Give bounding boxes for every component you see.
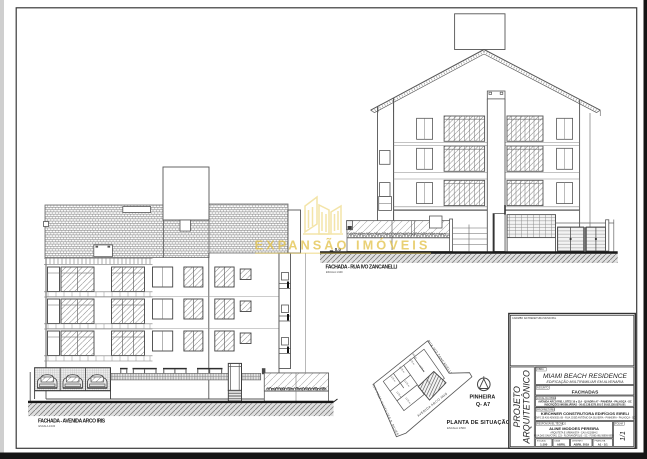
svg-text:EDIFICAÇÃO MULTIFAMILIAR EM AL: EDIFICAÇÃO MULTIFAMILIAR EM ALVENARIA <box>546 379 624 384</box>
svg-text:PINHEIRA: PINHEIRA <box>470 395 496 401</box>
svg-text:ESCALA 1/500: ESCALA 1/500 <box>447 426 466 430</box>
svg-text:ABRIL: ABRIL <box>557 442 566 446</box>
svg-text:PROJETO: PROJETO <box>512 386 522 428</box>
svg-text:ASSUNTO: ASSUNTO <box>537 387 549 390</box>
svg-text:FACHADAS: FACHADAS <box>572 390 599 396</box>
svg-text:1/1: 1/1 <box>620 431 627 441</box>
svg-text:OBRA: OBRA <box>537 368 544 371</box>
svg-text:KIRCHNER CONSTRUTORA EDIFÍCIOS: KIRCHNER CONSTRUTORA EDIFÍCIOS EIRELI <box>541 411 629 416</box>
svg-text:ESCALA 1/100: ESCALA 1/100 <box>326 271 343 274</box>
svg-text:INSCRIÇÕES IMOBILIÁRIAS - 50.6: INSCRIÇÕES IMOBILIÁRIAS - 50.62.138.0375… <box>544 404 626 407</box>
svg-text:CARIMBO DA PREFEITURA MUNICIPA: CARIMBO DA PREFEITURA MUNICIPAL <box>512 317 557 320</box>
svg-text:MIAMI BEACH RESIDENCE: MIAMI BEACH RESIDENCE <box>543 373 628 380</box>
svg-text:ARQUITETÔNICO: ARQUITETÔNICO <box>522 370 532 444</box>
svg-text:ALINE MODOES PEREIRA: ALINE MODOES PEREIRA <box>549 426 599 431</box>
svg-text:ESCALA 1/100: ESCALA 1/100 <box>39 425 56 428</box>
svg-text:FOLHA: FOLHA <box>615 423 623 426</box>
svg-text:CNPJ 29.426.439/0001-08 - RUA: CNPJ 29.426.439/0001-08 - RUA JOSÉ ANTÔN… <box>535 416 636 419</box>
svg-text:Q- A7: Q- A7 <box>476 402 490 408</box>
svg-text:FACHADA - RUA IVO ZANCANELLI: FACHADA - RUA IVO ZANCANELLI <box>326 265 398 271</box>
svg-text:ABRIL 2019: ABRIL 2019 <box>573 442 589 446</box>
svg-text:A1 - 1/1: A1 - 1/1 <box>598 442 608 446</box>
svg-text:EXPANSÃO IMÓVEIS: EXPANSÃO IMÓVEIS <box>255 238 431 253</box>
svg-text:FACHADA - AVENIDA ARCO IRIS: FACHADA - AVENIDA ARCO IRIS <box>38 419 106 425</box>
svg-text:1:100: 1:100 <box>540 442 548 446</box>
svg-text:ARQUITETA E URBANISTA - CAU A1: ARQUITETA E URBANISTA - CAU A132684-2 <box>550 431 598 434</box>
svg-text:RUA DAS GAIVOTAS, 123 - FLORIA: RUA DAS GAIVOTAS, 123 - FLORIANÓPOLIS - … <box>534 434 614 437</box>
